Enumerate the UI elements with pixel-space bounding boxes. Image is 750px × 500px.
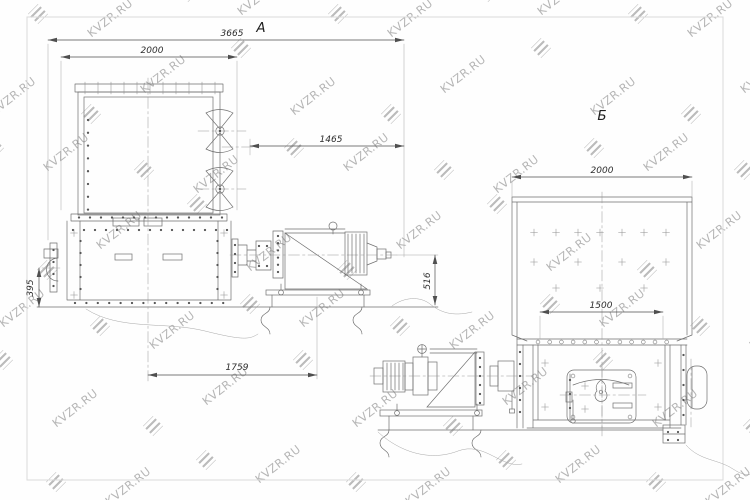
dimension-label-hopper-width-a: 2000 bbox=[141, 46, 164, 56]
view-a-drawing bbox=[37, 78, 472, 381]
dimension-label-base-span: 1759 bbox=[226, 363, 249, 373]
dimension-label-right-span: 1465 bbox=[320, 135, 343, 145]
view-a-label: А bbox=[255, 20, 265, 36]
dimension-label-left-height: 395 bbox=[26, 279, 36, 296]
technical-drawing: А Б 3665 2000 1465 1759 395 516 2000 150… bbox=[0, 0, 750, 500]
view-b-label: Б bbox=[597, 108, 606, 124]
dimension-label-hopper-width-b: 2000 bbox=[591, 166, 614, 176]
dimension-label-axis-height: 516 bbox=[423, 272, 433, 289]
dimension-label-body-width: 1500 bbox=[590, 301, 613, 311]
dimension-label-total-width: 3665 bbox=[221, 29, 244, 39]
drawing-sheet: KVZR.RUKVZR.RUKVZR.RUKVZR.RUKVZR.RUKVZR.… bbox=[0, 0, 750, 500]
drawing-frame bbox=[27, 17, 723, 480]
view-b-drawing bbox=[370, 192, 750, 475]
